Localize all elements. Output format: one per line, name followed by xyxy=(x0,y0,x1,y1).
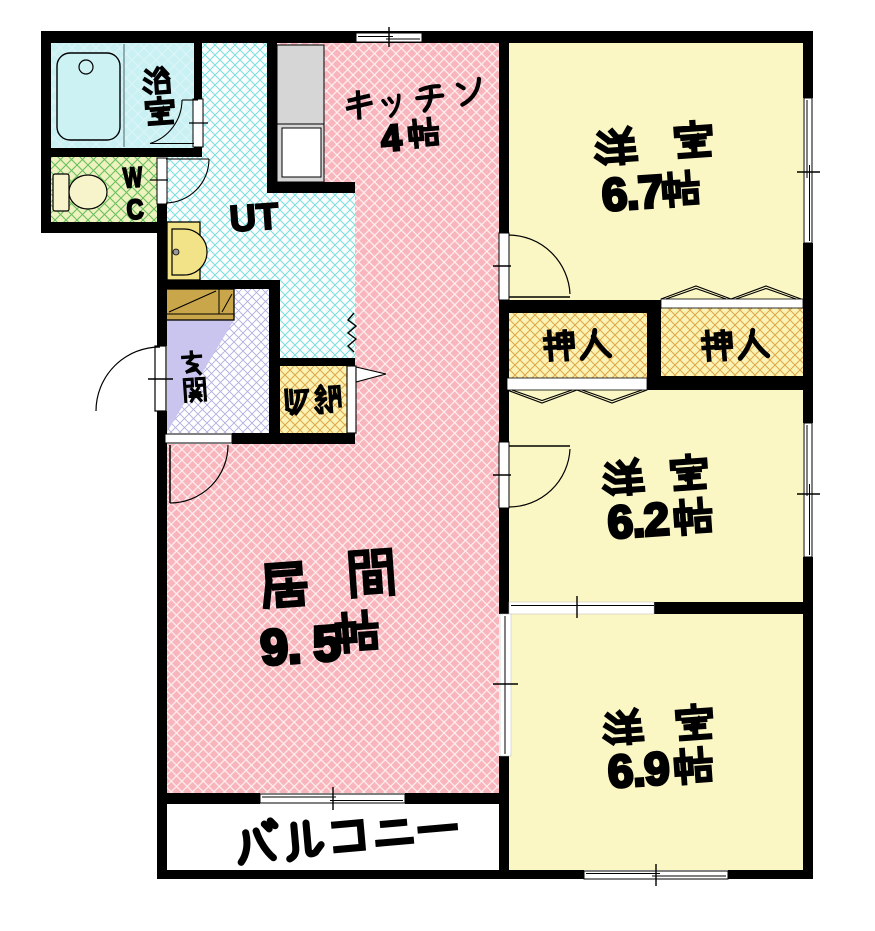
svg-text:6.2: 6.2 xyxy=(606,492,670,548)
svg-text:6.9: 6.9 xyxy=(606,742,670,798)
svg-text:W: W xyxy=(122,161,144,193)
svg-text:C: C xyxy=(125,193,144,225)
svg-text:4: 4 xyxy=(379,117,403,160)
svg-text:6.7: 6.7 xyxy=(600,165,664,221)
svg-text:UT: UT xyxy=(228,195,280,239)
svg-text:9. 5: 9. 5 xyxy=(259,615,342,676)
